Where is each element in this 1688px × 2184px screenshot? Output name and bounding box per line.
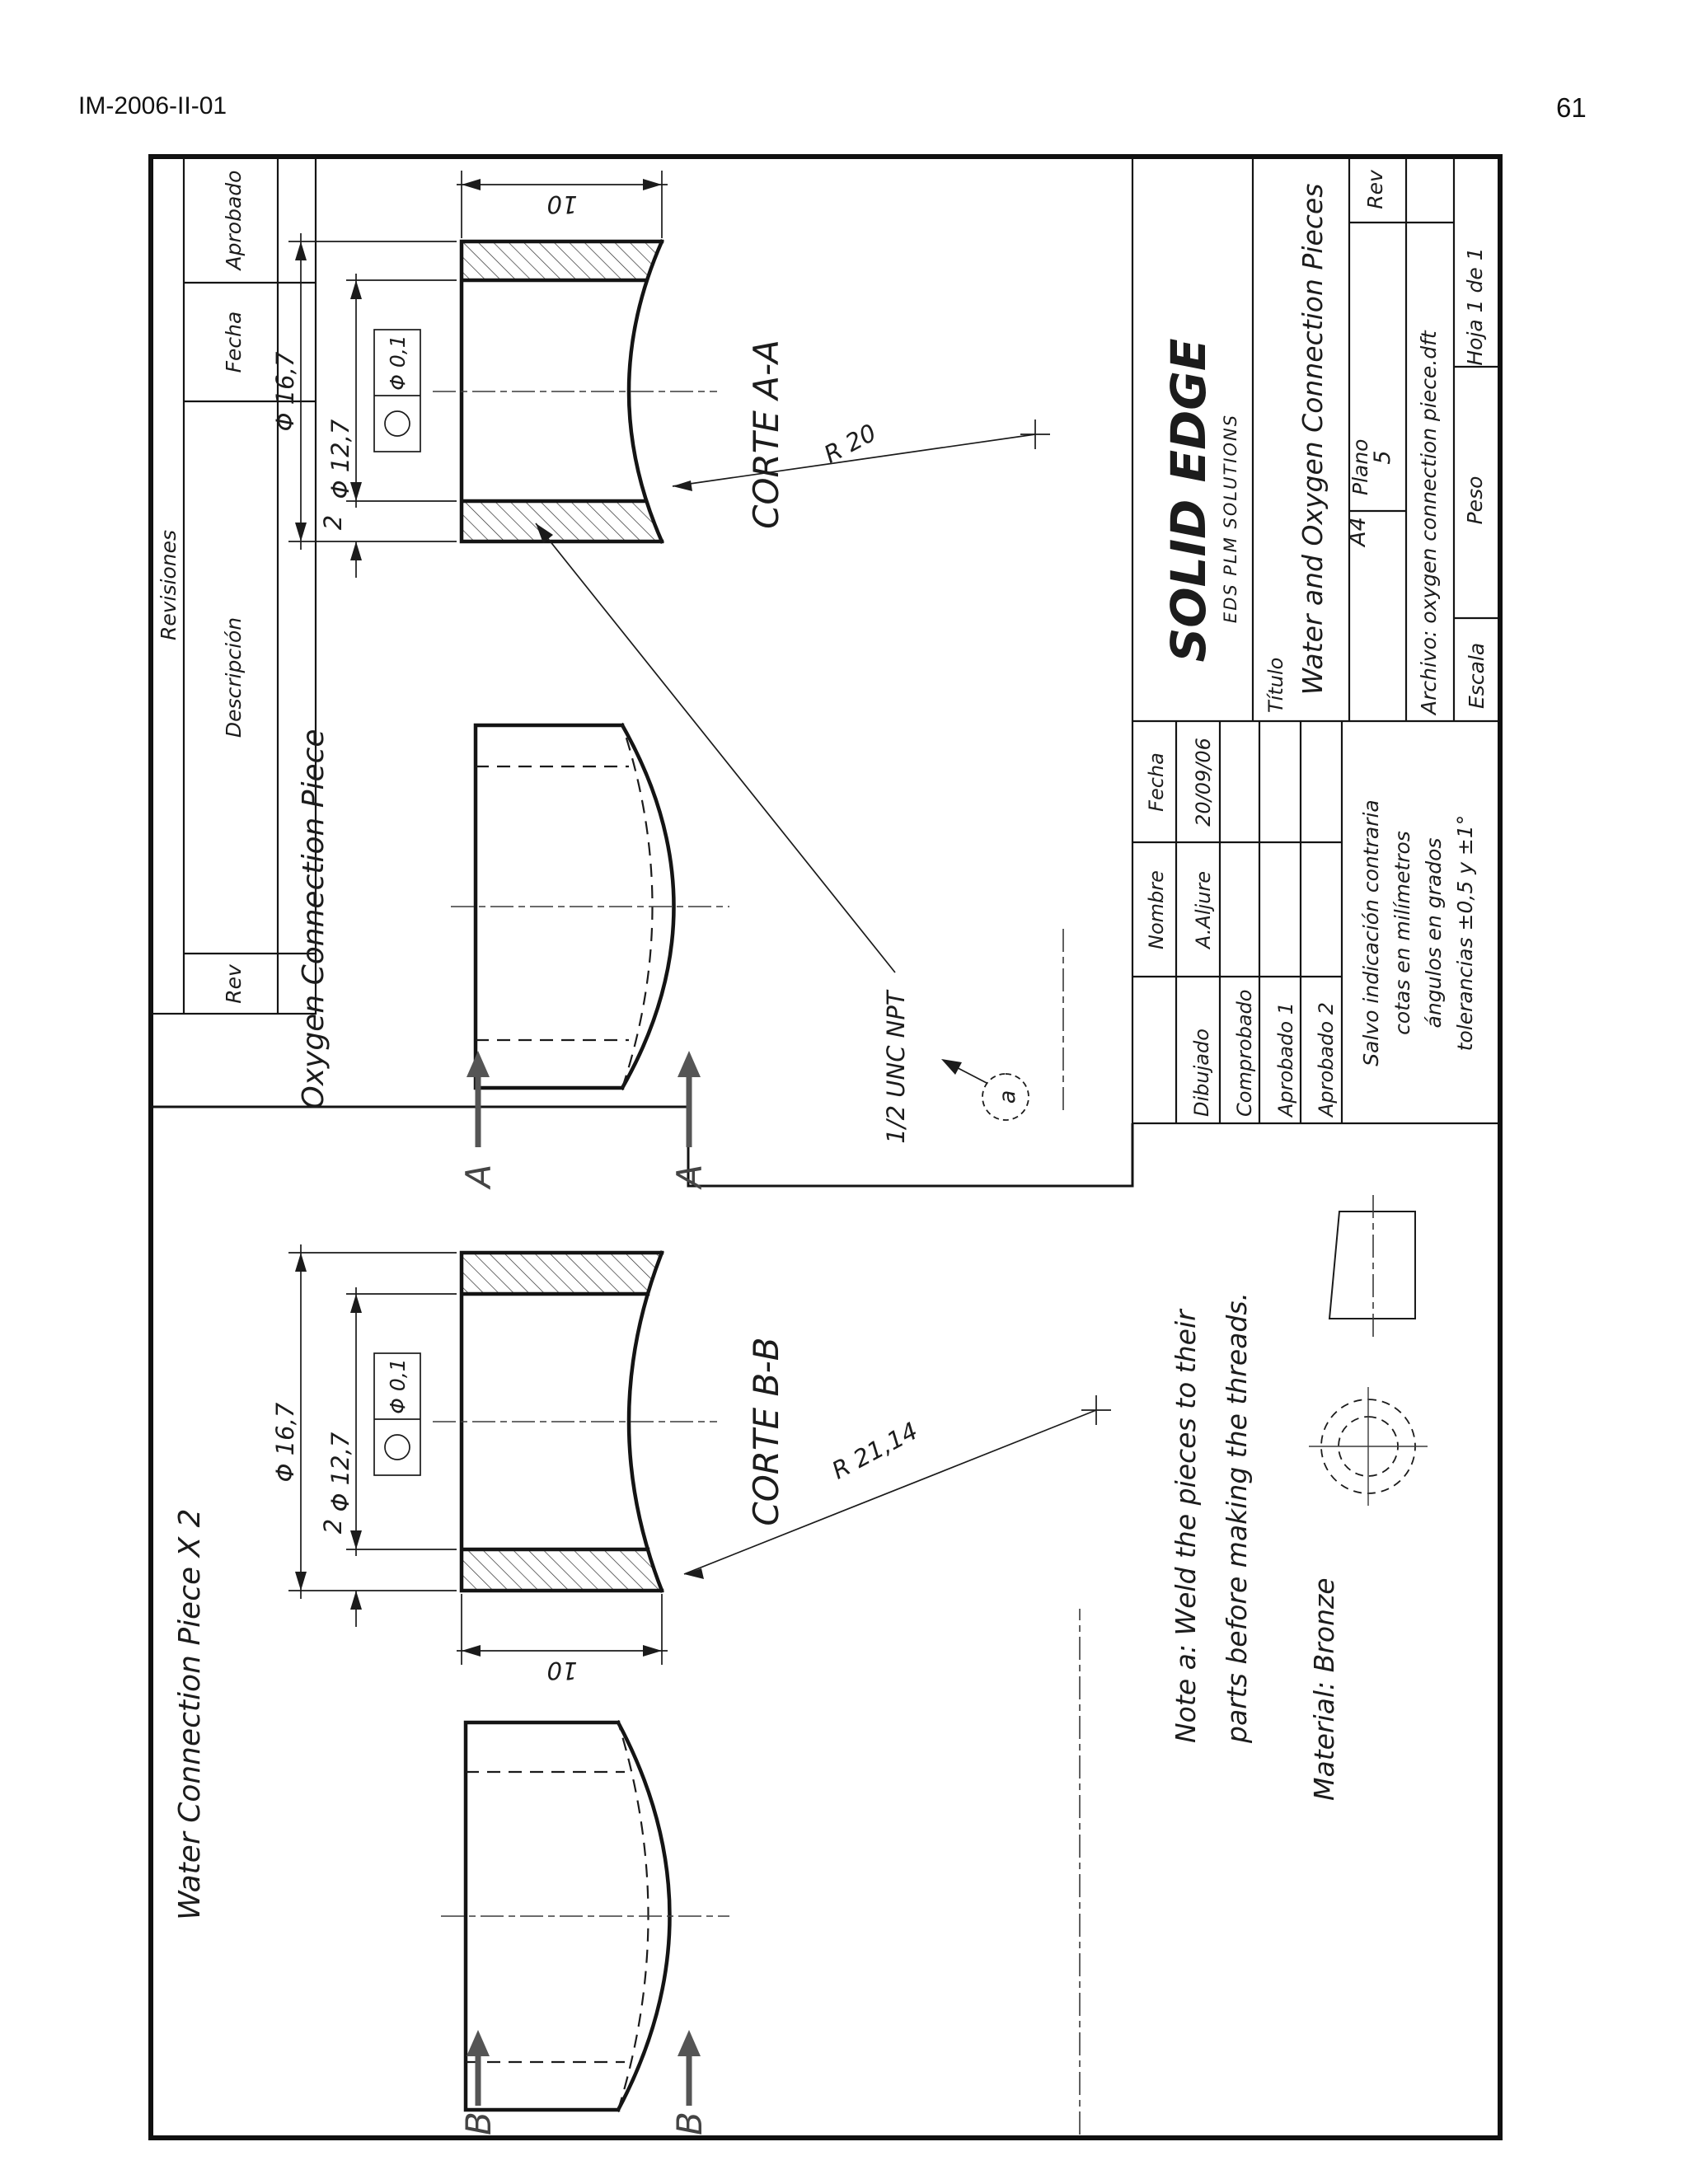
course-code: IM-2006-II-01 bbox=[78, 92, 227, 120]
sig-row-comprobado: Comprobado bbox=[1233, 990, 1256, 1117]
cutting-plane-a: A A bbox=[458, 1051, 710, 1190]
water-side-view: B B bbox=[441, 1722, 729, 2135]
dim-outer-dia-aa: Φ 16,7 bbox=[271, 351, 299, 431]
document-page: { "page": { "course_code": "IM-2006-II-0… bbox=[0, 0, 1688, 2184]
brand-logo: SOLID EDGE bbox=[1160, 339, 1217, 663]
note-a-line-2: parts before making the threads. bbox=[1221, 1292, 1253, 1744]
dim-inner-dia-bb: Φ 12,7 bbox=[326, 1432, 354, 1511]
cut-letter-b: B bbox=[458, 2111, 499, 2135]
rev-label: Rev bbox=[1363, 169, 1387, 209]
hatch-band bbox=[462, 1253, 661, 1294]
circularity-symbol-icon bbox=[385, 411, 410, 436]
brand-subtitle: EDS PLM SOLUTIONS bbox=[1221, 414, 1240, 623]
thread-note: 1/2 UNC NPT bbox=[882, 989, 910, 1143]
revisions-col-descripcion: Descripción bbox=[222, 617, 246, 738]
sig-dibujado-fecha: 20/09/06 bbox=[1192, 738, 1215, 827]
arc-center-mark bbox=[1020, 419, 1050, 449]
sheet-size: A4 bbox=[1345, 517, 1371, 548]
sig-row-aprobado2: Aprobado 2 bbox=[1315, 1002, 1338, 1118]
circularity-symbol-icon bbox=[385, 1435, 410, 1460]
corte-bb-dimensions: Φ 16,7 Φ 12,7 2 10 Φ 0,1 R 21,14 bbox=[271, 1244, 1111, 1685]
dim-wall-bb: 2 bbox=[319, 1519, 347, 1534]
dim-length-aa: 10 bbox=[547, 190, 578, 218]
hatch-band bbox=[462, 1549, 661, 1591]
tolerance-line-2: cotas en milímetros bbox=[1390, 831, 1414, 1035]
hoja-label: Hoja 1 de 1 bbox=[1463, 247, 1487, 365]
corte-aa-dimensions: Φ 16,7 Φ 12,7 2 10 Φ 0,1 R 20 bbox=[271, 171, 1050, 578]
fcf-value-bb: Φ 0,1 bbox=[386, 1358, 410, 1413]
plano-label: Plano bbox=[1348, 439, 1372, 495]
corte-bb-label: CORTE B-B bbox=[746, 1337, 786, 1526]
arc-center-mark bbox=[1081, 1395, 1111, 1425]
dim-radius-bb: R 21,14 bbox=[828, 1417, 922, 1485]
revisions-table: Revisiones Rev Descripción Fecha Aprobad… bbox=[151, 157, 316, 1014]
tolerance-line-3: ángulos en grados bbox=[1422, 838, 1446, 1029]
revisions-col-fecha: Fecha bbox=[222, 312, 246, 373]
notes: Note a: Weld the pieces to their parts b… bbox=[1170, 1292, 1340, 1801]
title-block: SOLID EDGE EDS PLM SOLUTIONS Título Wate… bbox=[1132, 157, 1498, 1123]
tolerance-line-1: Salvo indicación contraria bbox=[1359, 799, 1383, 1066]
revisions-col-rev: Rev bbox=[222, 963, 246, 1004]
dim-inner-dia-aa: Φ 12,7 bbox=[326, 419, 354, 499]
escala-label: Escala bbox=[1465, 643, 1489, 709]
titulo-label: Título bbox=[1264, 658, 1287, 713]
thread-annotation: 1/2 UNC NPT a bbox=[536, 523, 1029, 1144]
water-piece-label: Water Connection Piece X 2 bbox=[173, 1508, 207, 1920]
corte-aa-label: CORTE A-A bbox=[746, 340, 786, 529]
dim-wall-aa: 2 bbox=[319, 515, 347, 530]
drawing-sheet-svg: Revisiones Rev Descripción Fecha Aprobad… bbox=[148, 154, 1503, 2140]
hatch-band bbox=[462, 501, 661, 541]
feature-control-frame-aa: Φ 0,1 bbox=[374, 330, 420, 452]
signature-table: Nombre Fecha Dibujado Comprobado Aprobad… bbox=[1145, 738, 1338, 1118]
sig-nombre-header: Nombre bbox=[1145, 870, 1168, 949]
oxygen-side-view: A A bbox=[451, 725, 729, 1190]
cut-letter-b: B bbox=[669, 2111, 710, 2135]
note-a-line-1: Note a: Weld the pieces to their bbox=[1170, 1308, 1202, 1743]
thread-cone-detail bbox=[1329, 1193, 1415, 1337]
fcf-value-aa: Φ 0,1 bbox=[386, 335, 410, 390]
plano-value: 5 bbox=[1370, 450, 1395, 464]
sig-row-aprobado1: Aprobado 1 bbox=[1274, 1002, 1297, 1118]
hatch-band bbox=[462, 241, 661, 280]
dim-outer-dia-bb: Φ 16,7 bbox=[271, 1402, 299, 1482]
revisions-col-aprobado: Aprobado bbox=[222, 171, 246, 272]
tolerance-line-4: tolerancias ±0,5 y ±1° bbox=[1453, 815, 1477, 1052]
oxygen-piece-label: Oxygen Connection Piece bbox=[297, 729, 331, 1108]
dim-length-bb: 10 bbox=[547, 1657, 578, 1685]
page-number: 61 bbox=[1556, 92, 1587, 124]
corte-bb-view: CORTE B-B Φ 16,7 Φ 12,7 2 10 Φ 0,1 bbox=[271, 1244, 1111, 2135]
drawing-sheet: Revisiones Rev Descripción Fecha Aprobad… bbox=[148, 154, 1503, 2140]
revisions-title: Revisiones bbox=[157, 530, 181, 640]
sig-fecha-header: Fecha bbox=[1145, 752, 1168, 812]
cut-letter-a: A bbox=[669, 1165, 710, 1191]
sig-row-dibujado: Dibujado bbox=[1190, 1029, 1213, 1117]
cutting-plane-b: B B bbox=[458, 2030, 710, 2135]
thread-end-detail bbox=[1309, 1387, 1428, 1506]
sig-dibujado-nombre: A.Aljure bbox=[1192, 871, 1215, 950]
archivo: Archivo: oxygen connection piece.dft bbox=[1417, 330, 1441, 716]
cut-letter-a: A bbox=[458, 1165, 499, 1191]
weld-flag-letter: a bbox=[995, 1090, 1020, 1104]
peso-label: Peso bbox=[1463, 476, 1487, 525]
titulo-value: Water and Oxygen Connection Pieces bbox=[1296, 184, 1329, 696]
tolerance-note: Salvo indicación contraria cotas en milí… bbox=[1359, 799, 1477, 1066]
feature-control-frame-bb: Φ 0,1 bbox=[374, 1353, 420, 1475]
material-note: Material: Bronze bbox=[1308, 1577, 1340, 1801]
